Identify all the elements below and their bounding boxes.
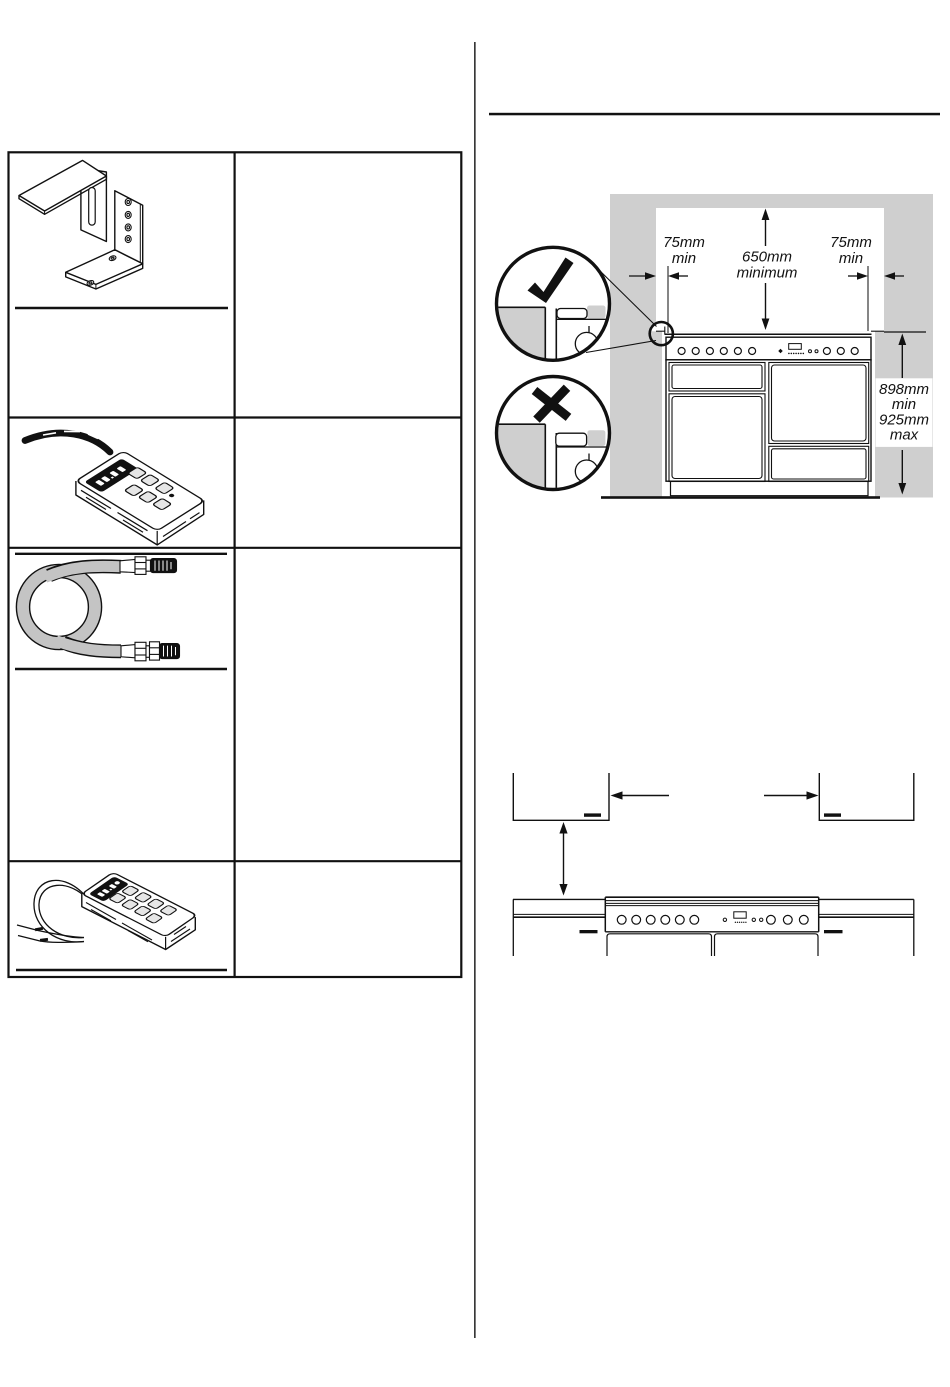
svg-text:minimum: minimum	[737, 265, 798, 282]
svg-text:min: min	[839, 250, 863, 267]
svg-text:min: min	[672, 250, 696, 267]
svg-text:75mm: 75mm	[663, 234, 705, 251]
svg-text:75mm: 75mm	[830, 234, 872, 251]
svg-text:650mm: 650mm	[742, 248, 792, 265]
svg-text:max: max	[890, 427, 919, 444]
